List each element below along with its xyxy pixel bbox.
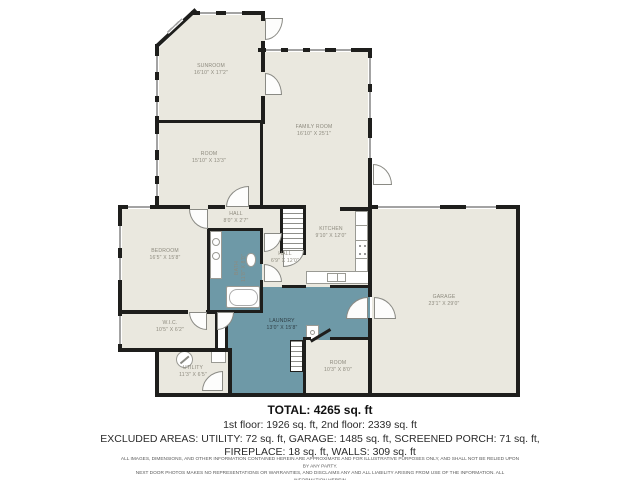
room-name: KITCHEN [315, 227, 346, 233]
label-bedroom: BEDROOM 16'5" X 15'8" [149, 249, 180, 262]
window-marker [155, 160, 159, 176]
stove-icon [355, 240, 368, 259]
label-kitchen: KITCHEN 9'10" X 12'0" [315, 227, 346, 240]
window-marker [310, 48, 325, 52]
label-room-upper: ROOM 15'10" X 13'3" [192, 152, 226, 165]
window-marker [378, 205, 440, 209]
window-marker [128, 205, 150, 209]
wall-segment [280, 206, 283, 253]
window-marker [155, 184, 159, 196]
room-dims: 10'3" X 8'0" [324, 367, 352, 373]
window-marker [266, 48, 281, 52]
label-room-lower: ROOM 10'3" X 8'0" [324, 361, 352, 374]
label-hall-upper: HALL 8'0" X 2'7" [223, 212, 248, 225]
disclaimer-line: NEXT DOOR PHOTOS MAKES NO REPRESENTATION… [121, 470, 520, 480]
wall-segment [368, 287, 372, 297]
wall-segment [157, 348, 232, 352]
sink-icon [212, 252, 220, 260]
room-dims: 23'1" X 29'0" [428, 301, 459, 307]
room-name: GARAGE [428, 295, 459, 301]
wall-segment [157, 120, 264, 123]
room-name: LAUNDRY [266, 319, 297, 325]
wall-segment [208, 205, 225, 209]
wall-segment [207, 228, 210, 314]
room-dims: 10'5" X 6'2" [156, 327, 184, 333]
room-name: SUNROOM [194, 64, 228, 70]
label-family: FAMILY ROOM 16'10" X 25'1" [296, 125, 333, 138]
wall-segment [370, 393, 520, 397]
room-dims: 15'10" X 13'3" [192, 158, 226, 164]
wall-segment [210, 228, 263, 231]
wall-segment [261, 48, 265, 72]
label-hall-lower: HALL 6'9" X 12'0" [271, 252, 299, 265]
room-dims: 16'5" X 15'8" [149, 255, 180, 261]
label-garage: GARAGE 23'1" X 29'0" [428, 295, 459, 308]
window-marker [118, 316, 122, 344]
door-arc [373, 164, 392, 185]
window-marker [155, 80, 159, 96]
area-summary: TOTAL: 4265 sq. ft 1st floor: 1926 sq. f… [0, 403, 640, 460]
wall-segment [260, 122, 263, 207]
wall-segment [282, 285, 306, 288]
window-marker [155, 56, 159, 72]
window-marker [200, 11, 216, 15]
window-marker [288, 48, 303, 52]
room-dims: 8'0" X 2'7" [223, 218, 248, 224]
disclaimer: ALL IMAGES, DIMENSIONS, AND OTHER INFORM… [121, 456, 520, 480]
window-marker [336, 48, 351, 52]
fridge-icon [355, 211, 368, 226]
room-name: FAMILY ROOM [296, 125, 333, 131]
window-marker [155, 102, 159, 116]
label-bath: BATH 11'8" X 8'0" [235, 254, 248, 282]
wall-segment [516, 205, 520, 397]
label-utility: UTILITY 11'3" X 6'5" [179, 366, 207, 379]
kitchen-sink-icon [327, 273, 346, 282]
staircase-main [282, 207, 304, 253]
window-marker [118, 226, 122, 248]
floor-plan-page: SUNROOM 16'10" X 17'2" FAMILY ROOM 16'10… [0, 0, 640, 480]
staircase-basement [290, 340, 303, 372]
wall-segment [228, 348, 232, 397]
wall-segment [260, 280, 263, 312]
wall-segment [368, 318, 372, 397]
room-dims: 9'10" X 12'0" [315, 233, 346, 239]
window-marker [368, 58, 372, 84]
window-marker [466, 205, 496, 209]
wall-segment [118, 348, 159, 352]
room-dims: 13'0" X 15'8" [266, 325, 297, 331]
wall-segment [330, 337, 372, 340]
wall-segment [303, 206, 306, 255]
window-marker [226, 11, 242, 15]
wall-segment [260, 228, 263, 264]
wall-segment [155, 348, 159, 397]
excluded-areas-line1: EXCLUDED AREAS: UTILITY: 72 sq. ft, GARA… [0, 433, 640, 445]
room-name: UTILITY [179, 366, 207, 372]
wall-segment [155, 393, 374, 397]
sink-icon [212, 238, 220, 246]
floor-areas: 1st floor: 1926 sq. ft, 2nd floor: 2339 … [0, 419, 640, 431]
utility-box [211, 351, 226, 363]
window-marker [155, 134, 159, 150]
room-name: BEDROOM [149, 249, 180, 255]
label-laundry: LAUNDRY 13'0" X 15'8" [266, 319, 297, 332]
label-wic: W.I.C. 10'5" X 6'2" [156, 321, 184, 334]
room-dims: 6'9" X 12'0" [271, 258, 299, 264]
window-marker [368, 92, 372, 118]
wall-segment [303, 340, 306, 395]
wall-segment [368, 209, 372, 287]
room-dims: 16'10" X 25'1" [296, 131, 333, 137]
washer-door [310, 330, 315, 335]
window-marker [368, 138, 372, 158]
room-dims: 11'8" X 8'0" [241, 254, 247, 282]
room-dims: 11'3" X 6'5" [179, 372, 207, 378]
bathtub-basin [229, 289, 258, 306]
window-marker [118, 258, 122, 280]
toilet-icon [246, 253, 256, 267]
disclaimer-line: ALL IMAGES, DIMENSIONS, AND OTHER INFORM… [121, 456, 520, 470]
room-dims: 16'10" X 17'2" [194, 70, 228, 76]
total-area: TOTAL: 4265 sq. ft [0, 403, 640, 417]
wall-segment [330, 285, 372, 288]
label-sunroom: SUNROOM 16'10" X 17'2" [194, 64, 228, 77]
wall-segment [249, 205, 306, 209]
wall-segment [118, 310, 188, 314]
door-arc [265, 18, 283, 40]
